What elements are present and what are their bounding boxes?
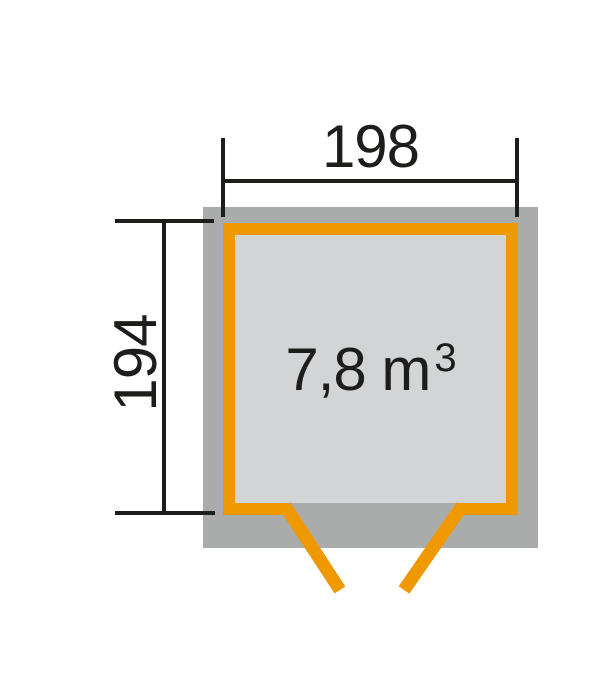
wall-outline-bottom-left <box>223 503 288 515</box>
volume-unit-superscript: 3 <box>434 336 455 380</box>
wall-outline-left <box>223 223 235 515</box>
wall-outline-bottom-right <box>458 503 518 515</box>
depth-dimension-label: 194 <box>106 303 166 423</box>
floor-plan-diagram: 198 194 7,8 m3 <box>0 0 600 700</box>
wall-outline-right <box>506 223 518 515</box>
volume-label: 7,8 m3 <box>235 340 506 400</box>
volume-value: 7,8 m <box>285 336 430 403</box>
width-dimension-label: 198 <box>223 117 518 177</box>
wall-outline-top <box>223 223 518 235</box>
